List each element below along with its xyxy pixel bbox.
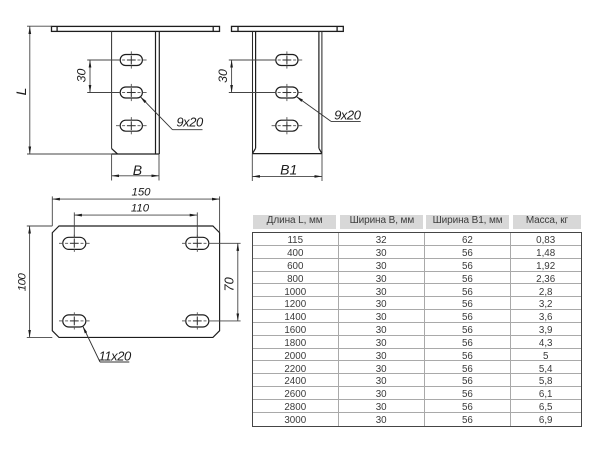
svg-text:L: L <box>13 88 29 96</box>
svg-text:B1: B1 <box>280 162 297 178</box>
svg-text:B: B <box>133 162 142 178</box>
svg-text:30: 30 <box>216 69 230 83</box>
svg-text:9x20: 9x20 <box>176 115 204 130</box>
svg-text:100: 100 <box>16 272 28 291</box>
svg-text:9x20: 9x20 <box>334 108 362 123</box>
svg-text:110: 110 <box>131 203 150 215</box>
svg-text:70: 70 <box>223 277 237 291</box>
svg-text:150: 150 <box>131 187 151 199</box>
svg-text:11x20: 11x20 <box>99 349 132 364</box>
svg-text:30: 30 <box>75 69 89 83</box>
